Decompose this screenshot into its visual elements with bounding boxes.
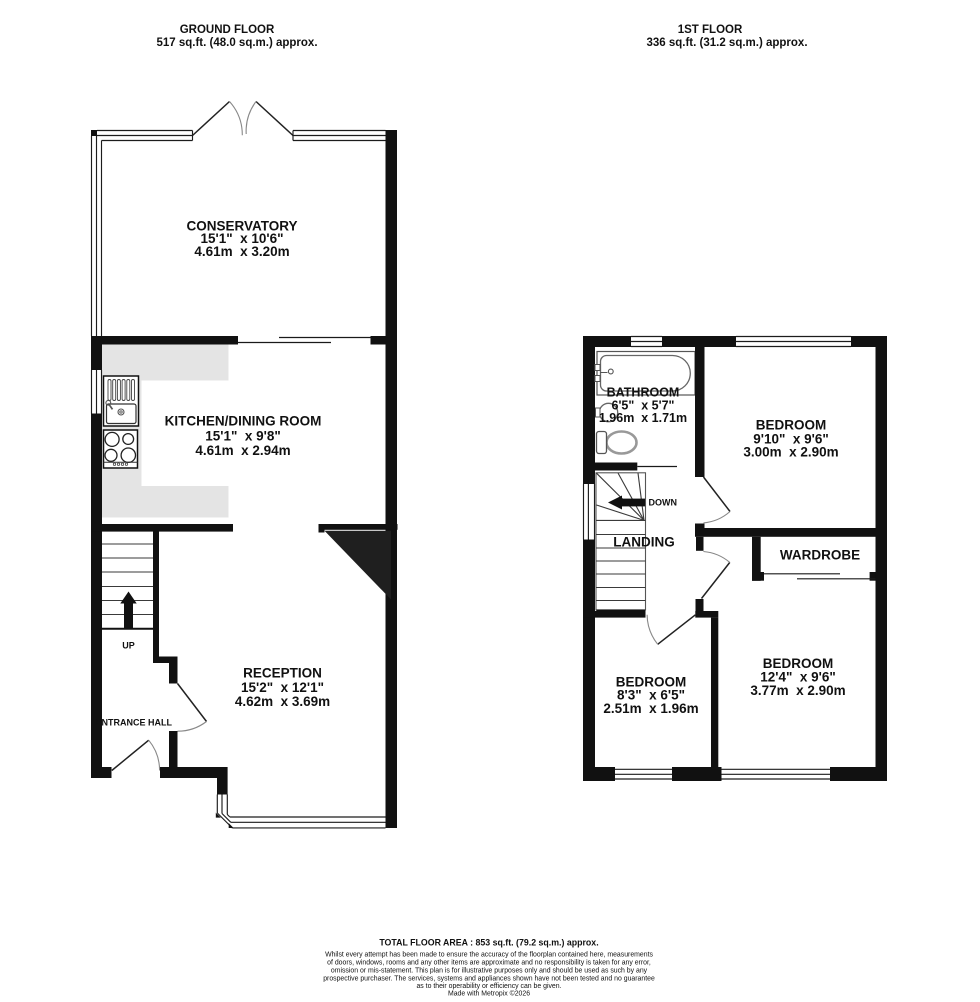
- svg-text:TOTAL FLOOR AREA : 853 sq.ft.: TOTAL FLOOR AREA : 853 sq.ft. (79.2 sq.m…: [379, 938, 598, 948]
- svg-text:BATHROOM: BATHROOM: [607, 386, 680, 400]
- svg-text:4.62m x 3.69m: 4.62m x 3.69m: [235, 694, 330, 709]
- svg-text:KITCHEN/DINING ROOM: KITCHEN/DINING ROOM: [165, 414, 322, 429]
- svg-text:LANDING: LANDING: [613, 535, 675, 550]
- svg-text:1ST FLOOR: 1ST FLOOR: [678, 24, 743, 36]
- svg-text:4.61m x 3.20m: 4.61m x 3.20m: [194, 244, 289, 259]
- svg-text:15'2" x 12'1": 15'2" x 12'1": [241, 680, 324, 695]
- svg-text:517 sq.ft. (48.0 sq.m.) approx: 517 sq.ft. (48.0 sq.m.) approx.: [156, 37, 317, 49]
- svg-text:ENTRANCE HALL: ENTRANCE HALL: [96, 718, 173, 728]
- svg-text:Whilst every attempt has been: Whilst every attempt has been made to en…: [325, 951, 653, 958]
- svg-text:of doors, windows, rooms and a: of doors, windows, rooms and any other i…: [327, 959, 651, 966]
- svg-text:omission or mis-statement. Thi: omission or mis-statement. This plan is …: [331, 967, 648, 974]
- svg-text:1.96m x 1.71m: 1.96m x 1.71m: [599, 411, 687, 425]
- svg-text:3.00m x 2.90m: 3.00m x 2.90m: [743, 445, 838, 460]
- svg-text:UP: UP: [122, 641, 135, 651]
- svg-text:336 sq.ft. (31.2 sq.m.) approx: 336 sq.ft. (31.2 sq.m.) approx.: [646, 37, 807, 49]
- svg-text:4.61m x 2.94m: 4.61m x 2.94m: [195, 443, 290, 458]
- svg-text:RECEPTION: RECEPTION: [243, 666, 322, 681]
- svg-text:GROUND FLOOR: GROUND FLOOR: [180, 24, 275, 36]
- svg-text:3.77m x 2.90m: 3.77m x 2.90m: [750, 683, 845, 698]
- svg-text:DOWN: DOWN: [649, 498, 678, 508]
- svg-text:15'1" x 9'8": 15'1" x 9'8": [205, 429, 281, 444]
- svg-text:2.51m x 1.96m: 2.51m x 1.96m: [603, 701, 698, 716]
- svg-text:prospective purchaser. The ser: prospective purchaser. The services, sys…: [323, 975, 655, 982]
- svg-text:WARDROBE: WARDROBE: [780, 548, 860, 563]
- svg-text:BEDROOM: BEDROOM: [756, 418, 827, 433]
- svg-text:as to their operability or eff: as to their operability or efficiency ca…: [416, 983, 561, 990]
- svg-text:Made with Metropix ©2026: Made with Metropix ©2026: [448, 990, 530, 997]
